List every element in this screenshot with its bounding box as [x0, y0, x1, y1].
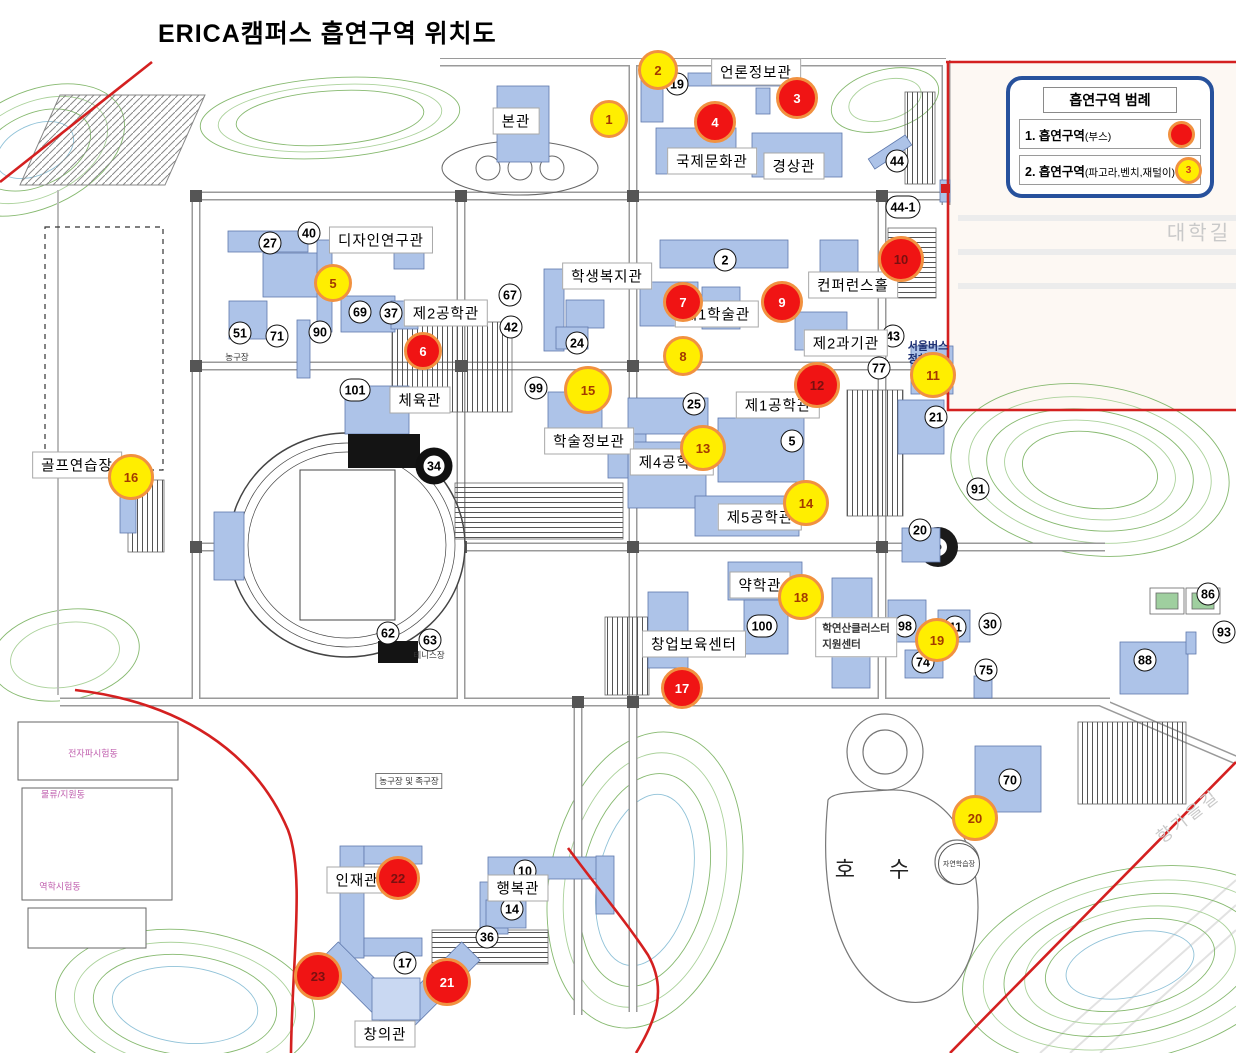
area-label-향가을길: 향가을길 [1150, 782, 1224, 848]
smoking-area-marker-5[interactable]: 5 [314, 264, 352, 302]
smoking-area-marker-1[interactable]: 1 [590, 100, 628, 138]
building-number-69: 69 [349, 301, 372, 324]
area-label-역학시험동: 역학시험동 [39, 880, 80, 893]
building-label-디자인연구관: 디자인연구관 [329, 227, 433, 254]
building-number-27: 27 [259, 232, 282, 255]
building-label-제2공학관: 제2공학관 [404, 300, 488, 327]
building-number-98: 98 [894, 615, 917, 638]
smoking-area-marker-14[interactable]: 14 [783, 480, 829, 526]
smoking-area-marker-20[interactable]: 20 [952, 795, 998, 841]
smoking-area-marker-13[interactable]: 13 [680, 425, 726, 471]
building-number-36: 36 [476, 926, 499, 949]
building-number-24: 24 [566, 332, 589, 355]
page-title: ERICA캠퍼스 흡연구역 위치도 [158, 14, 497, 50]
smoking-area-marker-2[interactable]: 2 [638, 50, 678, 90]
smoking-area-marker-7[interactable]: 7 [663, 282, 703, 322]
smoking-area-marker-10[interactable]: 10 [878, 236, 924, 282]
smoking-area-marker-17[interactable]: 17 [661, 667, 703, 709]
building-label-학생복지관: 학생복지관 [562, 263, 652, 290]
building-number-25: 25 [683, 393, 706, 416]
bench-marker-sample-icon: 3 [1175, 157, 1202, 184]
smoking-area-marker-15[interactable]: 15 [564, 366, 612, 414]
area-label-학연산클러스터-지원센터: 학연산클러스터 지원센터 [815, 617, 897, 657]
smoking-area-marker-3[interactable]: 3 [776, 77, 818, 119]
smoking-area-marker-16[interactable]: 16 [108, 454, 154, 500]
building-label-행복관: 행복관 [487, 875, 548, 902]
building-number-75: 75 [975, 659, 998, 682]
building-number-101: 101 [340, 379, 371, 402]
smoking-area-marker-21[interactable]: 21 [423, 958, 471, 1006]
building-label-창의관: 창의관 [354, 1021, 415, 1048]
building-number-93: 93 [1213, 621, 1236, 644]
smoking-area-legend: 흡연구역 범례 1. 흡연구역(부스) 2. 흡연구역(파고라,벤치,재털이) … [1006, 76, 1214, 198]
building-number-100: 100 [747, 615, 778, 638]
building-number-30: 30 [979, 613, 1002, 636]
legend-item-booth: 1. 흡연구역(부스) [1019, 119, 1201, 149]
area-label-대학길: 대학길 [1167, 217, 1231, 246]
building-label-경상관: 경상관 [763, 153, 824, 180]
building-number-40: 40 [298, 222, 321, 245]
legend-item-booth-label: 1. 흡연구역(부스) [1025, 125, 1111, 144]
legend-title: 흡연구역 범례 [1043, 87, 1177, 113]
smoking-area-marker-8[interactable]: 8 [663, 336, 703, 376]
booth-marker-sample-icon [1168, 121, 1195, 148]
building-number-71: 71 [266, 325, 289, 348]
area-label-물류/지원동: 물류/지원동 [41, 788, 85, 801]
building-number-99: 99 [525, 377, 548, 400]
building-number-44-1: 44-1 [885, 196, 920, 219]
smoking-area-marker-18[interactable]: 18 [778, 574, 824, 620]
building-number-77: 77 [868, 357, 891, 380]
building-number-2: 2 [714, 249, 737, 272]
smoking-area-marker-23[interactable]: 23 [294, 952, 342, 1000]
building-number-51: 51 [229, 322, 252, 345]
smoking-area-marker-9[interactable]: 9 [761, 281, 803, 323]
building-label-체육관: 체육관 [389, 387, 450, 414]
building-number-70: 70 [999, 769, 1022, 792]
legend-item-bench-label: 2. 흡연구역(파고라,벤치,재털이) [1025, 161, 1175, 180]
building-number-20: 20 [909, 519, 932, 542]
building-number-34: 34 [423, 455, 446, 478]
smoking-area-marker-6[interactable]: 6 [404, 332, 442, 370]
smoking-area-marker-4[interactable]: 4 [694, 101, 736, 143]
building-number-62: 62 [377, 622, 400, 645]
building-number-90: 90 [309, 321, 332, 344]
area-label-호-수: 호 수 [835, 852, 924, 884]
building-number-44: 44 [886, 150, 909, 173]
smoking-area-map-page: 1234567891011121314151617181920212223194… [0, 0, 1236, 1053]
area-label-농구장-및-족구장: 농구장 및 족구장 [375, 773, 442, 789]
building-number-86: 86 [1197, 583, 1220, 606]
building-number-67: 67 [499, 284, 522, 307]
smoking-area-marker-11[interactable]: 11 [910, 352, 956, 398]
building-number-88: 88 [1134, 649, 1157, 672]
building-label-본관: 본관 [493, 108, 540, 135]
building-number-42: 42 [500, 316, 523, 339]
building-number-37: 37 [380, 302, 403, 325]
building-label-학술정보관: 학술정보관 [544, 428, 634, 455]
smoking-area-marker-12[interactable]: 12 [794, 362, 840, 408]
legend-item-bench: 2. 흡연구역(파고라,벤치,재털이) 3 [1019, 155, 1201, 185]
smoking-area-marker-19[interactable]: 19 [915, 618, 959, 662]
building-number-91: 91 [967, 478, 990, 501]
area-label-자연학습장: 자연학습장 [938, 843, 980, 885]
area-label-농구장: 농구장 [225, 351, 248, 363]
area-label-전자파시험동: 전자파시험동 [68, 747, 118, 760]
building-number-63: 63 [419, 629, 442, 652]
building-number-21: 21 [925, 406, 948, 429]
building-label-국제문화관: 국제문화관 [667, 148, 757, 175]
building-number-5: 5 [781, 430, 804, 453]
building-number-17: 17 [394, 952, 417, 975]
building-label-제2과기관: 제2과기관 [804, 330, 888, 357]
building-label-창업보육센터: 창업보육센터 [642, 631, 746, 658]
smoking-area-marker-22[interactable]: 22 [376, 856, 420, 900]
